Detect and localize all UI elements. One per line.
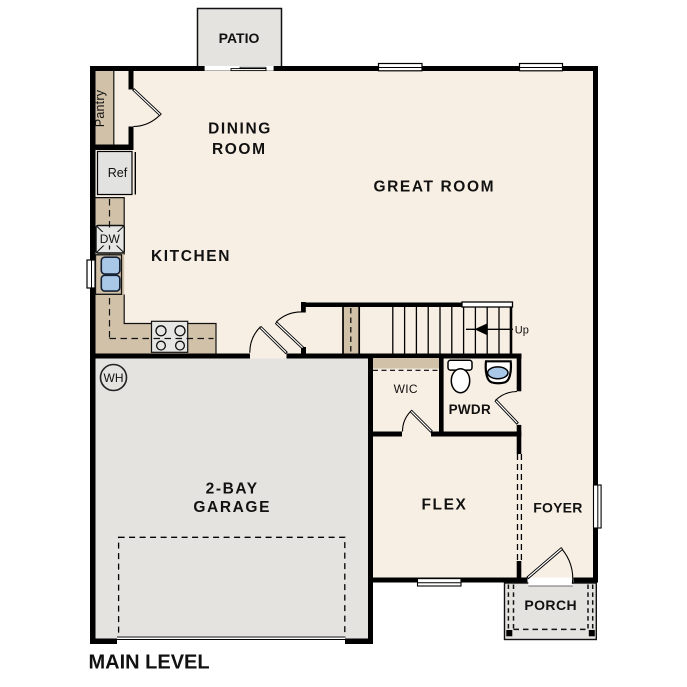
svg-text:WIC: WIC (394, 382, 418, 396)
svg-text:PWDR: PWDR (449, 402, 491, 417)
svg-text:Pantry: Pantry (93, 89, 107, 127)
svg-text:MAIN LEVEL: MAIN LEVEL (89, 652, 210, 674)
svg-text:PORCH: PORCH (524, 597, 577, 613)
svg-text:2-BAY: 2-BAY (206, 480, 259, 497)
svg-text:KITCHEN: KITCHEN (151, 248, 231, 265)
svg-text:ROOM: ROOM (212, 141, 267, 158)
svg-text:FOYER: FOYER (533, 500, 582, 516)
svg-text:PATIO: PATIO (219, 30, 260, 46)
svg-text:DINING: DINING (208, 121, 272, 138)
svg-text:WH: WH (104, 371, 124, 385)
svg-text:DW: DW (100, 232, 121, 246)
svg-text:Ref: Ref (108, 166, 128, 180)
svg-text:FLEX: FLEX (421, 496, 467, 513)
svg-text:GARAGE: GARAGE (193, 499, 271, 516)
svg-text:GREAT ROOM: GREAT ROOM (373, 179, 495, 196)
svg-text:Up: Up (515, 324, 529, 336)
